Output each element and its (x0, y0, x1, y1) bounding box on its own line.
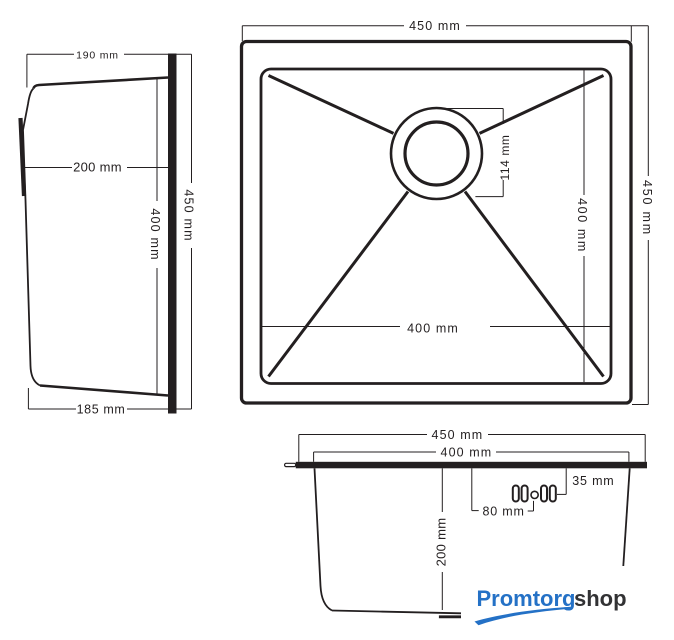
svg-text:35 mm: 35 mm (572, 474, 614, 488)
svg-text:400 mm: 400 mm (407, 322, 459, 336)
svg-text:190 mm: 190 mm (76, 50, 119, 62)
svg-text:400 mm: 400 mm (148, 208, 162, 260)
svg-text:80 mm: 80 mm (483, 505, 525, 519)
svg-text:400 mm: 400 mm (575, 198, 589, 253)
svg-text:185 mm: 185 mm (77, 403, 126, 417)
svg-text:200 mm: 200 mm (434, 518, 449, 567)
svg-text:200 mm: 200 mm (73, 160, 122, 175)
svg-text:450 mm: 450 mm (432, 428, 484, 442)
svg-text:Promtorg: Promtorg (477, 586, 576, 611)
svg-text:450 mm: 450 mm (182, 189, 196, 241)
svg-text:450 mm: 450 mm (409, 19, 461, 33)
svg-text:450 mm: 450 mm (640, 180, 654, 236)
svg-text:114 mm: 114 mm (498, 134, 512, 180)
svg-text:400 mm: 400 mm (441, 446, 493, 460)
svg-text:shop: shop (574, 586, 627, 611)
